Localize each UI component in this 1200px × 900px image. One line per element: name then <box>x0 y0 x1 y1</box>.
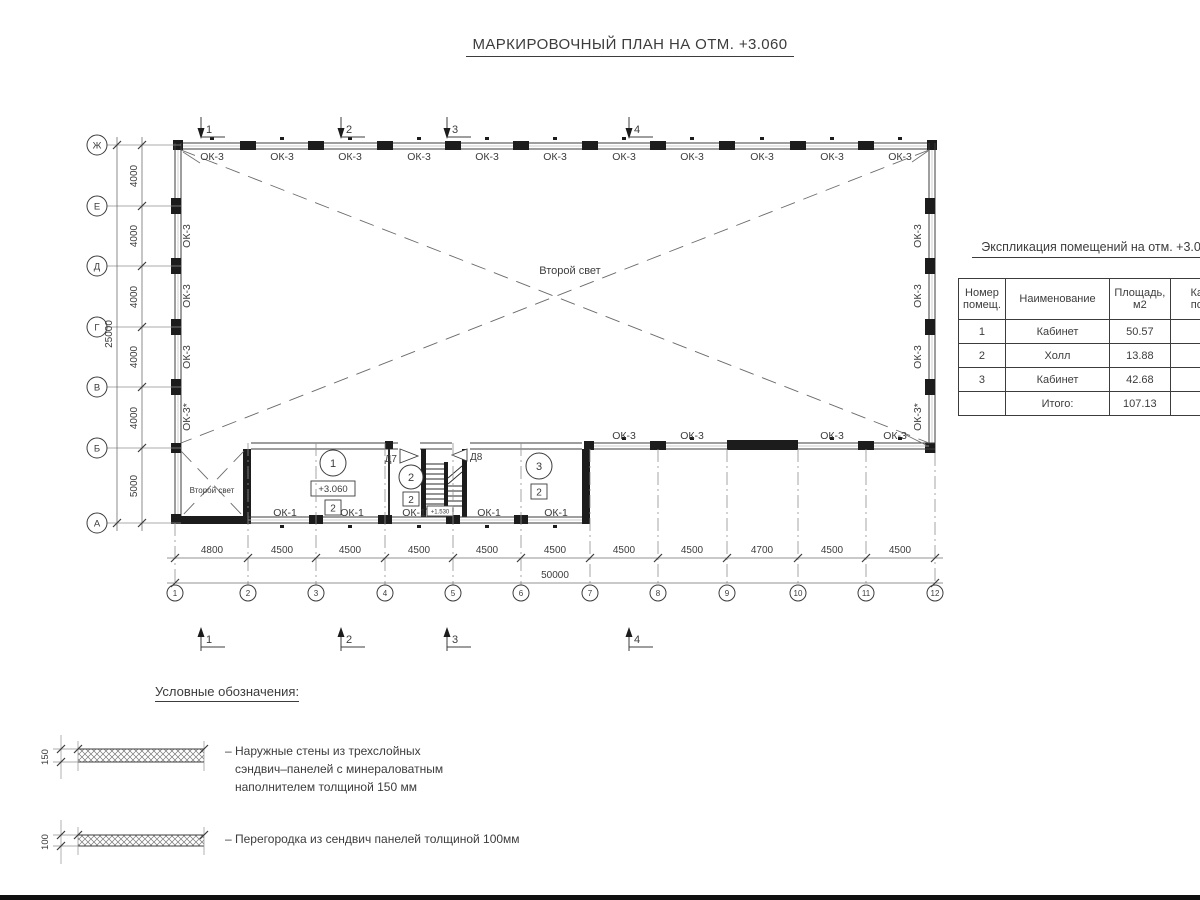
cell-area: 13.88 <box>1110 344 1170 368</box>
dimension-label: 4700 <box>751 545 774 556</box>
room-category: 2 <box>330 504 336 515</box>
window-label: ОК-3 <box>475 151 499 163</box>
window-label: ОК-1 <box>544 507 568 519</box>
window-label: ОК-3 <box>181 224 193 248</box>
top-wall <box>173 137 937 150</box>
room-2: 2 2 <box>399 465 423 506</box>
door-d8: Д8 <box>452 449 483 463</box>
grid-col-label: 3 <box>314 589 319 598</box>
room-number: 1 <box>330 458 336 470</box>
window-label: ОК-3 <box>407 151 431 163</box>
grid-row-label: Б <box>94 444 100 455</box>
room-3: 3 2 <box>526 453 552 499</box>
legend-item-exterior-wall: – Наружные стены из трехслойных сэндвич–… <box>225 742 510 796</box>
dimension-label: 4500 <box>821 545 844 556</box>
legend-line: – Наружные стены из трехслойных <box>225 742 510 760</box>
legend-line: сэндвич–панелей с минераловатным <box>225 760 510 778</box>
legend-dim-label: 100 <box>40 834 51 850</box>
legend-title: Условные обозначения: <box>155 684 299 699</box>
legend-symbol-partition: 100 <box>40 818 220 868</box>
second-light-area: Второй свет Второй свет <box>181 150 929 517</box>
section-markers-bottom: 1 2 3 4 <box>198 627 654 651</box>
cell-cut <box>1170 320 1200 344</box>
window-label: ОК-3 <box>820 430 844 442</box>
grid-row-label: В <box>94 383 100 394</box>
window-label: ОК-3 <box>883 430 907 442</box>
total-label: Итого: <box>1005 392 1109 416</box>
room-number: 3 <box>536 461 542 473</box>
legend-item-partition: – Перегородка из сендвич панелей толщино… <box>225 830 565 848</box>
cell-name: Холл <box>1005 344 1109 368</box>
explication-title: Экспликация помещений на отм. +3.060 <box>972 240 1200 258</box>
section-label: 4 <box>634 634 640 646</box>
dimension-label: 4500 <box>681 545 704 556</box>
grid-col-label: 6 <box>519 589 524 598</box>
section-label: 3 <box>452 634 458 646</box>
window-label: ОК-1 <box>402 507 426 519</box>
grid-col-label: 1 <box>173 589 178 598</box>
room-number: 2 <box>408 472 414 484</box>
window-label: ОК-3 <box>543 151 567 163</box>
window-label: ОК-3 <box>680 151 704 163</box>
door-d8-label: Д8 <box>470 452 483 463</box>
window-label: ОК-3 <box>888 151 912 163</box>
dimension-label: 4000 <box>129 164 140 187</box>
col-header-name: Наименование <box>1005 279 1109 320</box>
dimension-label: 4000 <box>129 406 140 429</box>
window-label: ОК-3 <box>820 151 844 163</box>
grid-row-label: Д <box>94 262 101 273</box>
section-label: 3 <box>452 124 458 136</box>
grid-col-label: 12 <box>931 589 940 598</box>
window-label: ОК-3 <box>200 151 224 163</box>
dimension-label: 4000 <box>129 224 140 247</box>
window-label: ОК-3 <box>912 345 924 369</box>
dimensions-left: 4000 4000 4000 4000 4000 5000 25000 <box>104 137 146 531</box>
dimensions-bottom: 4800 4500 4500 4500 4500 4500 4500 4500 … <box>167 545 943 587</box>
window-label: ОК-3* <box>181 403 193 431</box>
door-d7-label: Д7 <box>385 454 398 465</box>
cell-area: 50.57 <box>1110 320 1170 344</box>
left-wall <box>171 143 181 524</box>
window-label: ОК-3 <box>912 284 924 308</box>
grid-col-label: 2 <box>246 589 251 598</box>
window-label: ОК-3 <box>270 151 294 163</box>
cell-number <box>959 392 1006 416</box>
col-header-area: Площадь, м2 <box>1110 279 1170 320</box>
window-label: ОК-3 <box>338 151 362 163</box>
window-label: ОК-3 <box>181 284 193 308</box>
col-header-cut: Ка по <box>1170 279 1200 320</box>
table-header-row: Номер помещ. Наименование Площадь, м2 Ка… <box>959 279 1200 320</box>
section-label: 1 <box>206 124 212 136</box>
grid-col-label: 9 <box>725 589 730 598</box>
window-label: ОК-1 <box>477 507 501 519</box>
window-label: ОК-3 <box>612 151 636 163</box>
window-labels-right: ОК-3 ОК-3 ОК-3 ОК-3* <box>912 224 924 431</box>
cell-name: Кабинет <box>1005 368 1109 392</box>
section-label: 1 <box>206 634 212 646</box>
table-row: 3 Кабинет 42.68 <box>959 368 1200 392</box>
dimension-total-label: 25000 <box>104 320 115 348</box>
right-wall <box>925 143 935 453</box>
cell-number: 1 <box>959 320 1006 344</box>
window-label: ОК-3* <box>912 403 924 431</box>
cell-number: 2 <box>959 344 1006 368</box>
col-header-cut-line2: по <box>1191 299 1200 311</box>
dimension-label: 4000 <box>129 345 140 368</box>
grid-col-label: 10 <box>794 589 803 598</box>
legend-symbol-exterior-wall: 150 <box>40 733 220 783</box>
legend-title-text: Условные обозначения: <box>155 684 299 702</box>
window-label: ОК-3 <box>181 345 193 369</box>
grid-col-label: 4 <box>383 589 388 598</box>
section-label: 2 <box>346 124 352 136</box>
window-labels-top: ОК-3 ОК-3 ОК-3 ОК-3 ОК-3 ОК-3 ОК-3 ОК-3 … <box>183 151 928 163</box>
second-light-label-small: Второй свет <box>190 486 235 495</box>
room-category: 2 <box>536 488 542 499</box>
table-row: 2 Холл 13.88 <box>959 344 1200 368</box>
dimension-label: 4000 <box>129 285 140 308</box>
grid-col-label: 11 <box>862 589 871 598</box>
dimension-label: 5000 <box>129 474 140 497</box>
grid-row-label: А <box>94 519 101 530</box>
stair-landing-elevation: +1.530 <box>431 510 450 516</box>
grid-col-label: 7 <box>588 589 593 598</box>
cell-cut <box>1170 344 1200 368</box>
cell-area: 42.68 <box>1110 368 1170 392</box>
col-header-cut-line1: Ка <box>1191 287 1200 299</box>
dimension-total-label: 50000 <box>541 570 569 581</box>
dimension-label: 4500 <box>889 545 912 556</box>
col-header-number: Номер помещ. <box>959 279 1006 320</box>
legend-dim-label: 150 <box>40 749 51 765</box>
dimension-label: 4500 <box>339 545 362 556</box>
window-label: ОК-3 <box>612 430 636 442</box>
explication-table: Номер помещ. Наименование Площадь, м2 Ка… <box>958 278 1200 416</box>
grid-col-label: 5 <box>451 589 456 598</box>
room-elevation: +3.060 <box>318 484 347 495</box>
annex-walls <box>175 441 590 528</box>
legend-line: – Перегородка из сендвич панелей толщино… <box>225 830 565 848</box>
cell-cut <box>1170 368 1200 392</box>
stair: +1.530 <box>426 462 462 516</box>
window-label: ОК-1 <box>273 507 297 519</box>
table-row: 1 Кабинет 50.57 <box>959 320 1200 344</box>
section-label: 2 <box>346 634 352 646</box>
cell-cut <box>1170 392 1200 416</box>
total-value: 107.13 <box>1110 392 1170 416</box>
table-total-row: Итого: 107.13 <box>959 392 1200 416</box>
window-label: ОК-3 <box>912 224 924 248</box>
room-category: 2 <box>408 495 414 506</box>
legend-line: наполнителем толщиной 150 мм <box>225 778 510 796</box>
cell-number: 3 <box>959 368 1006 392</box>
dimension-label: 4500 <box>613 545 636 556</box>
sheet-bottom-border <box>0 895 1200 900</box>
second-light-label: Второй свет <box>539 265 600 277</box>
grid-rows: Ж Е Д Г В Б А <box>87 135 181 533</box>
explication: Экспликация помещений на отм. +3.060 Ном… <box>958 240 1200 416</box>
cell-name: Кабинет <box>1005 320 1109 344</box>
window-label: ОК-3 <box>680 430 704 442</box>
section-label: 4 <box>634 124 640 136</box>
window-label: ОК-1 <box>340 507 364 519</box>
grid-row-label: Е <box>94 202 100 213</box>
section-markers-top: 1 2 3 4 <box>198 117 654 139</box>
dimension-label: 4500 <box>408 545 431 556</box>
grid-row-label: Г <box>94 323 99 334</box>
dimension-label: 4500 <box>544 545 567 556</box>
window-label: ОК-3 <box>750 151 774 163</box>
dimension-label: 4500 <box>476 545 499 556</box>
dimension-label: 4800 <box>201 545 224 556</box>
grid-col-label: 8 <box>656 589 661 598</box>
dimension-label: 4500 <box>271 545 294 556</box>
grid-row-label: Ж <box>93 141 102 152</box>
window-labels-left: ОК-3 ОК-3 ОК-3 ОК-3* <box>181 224 193 431</box>
room-1: 1 +3.060 2 <box>311 450 355 515</box>
